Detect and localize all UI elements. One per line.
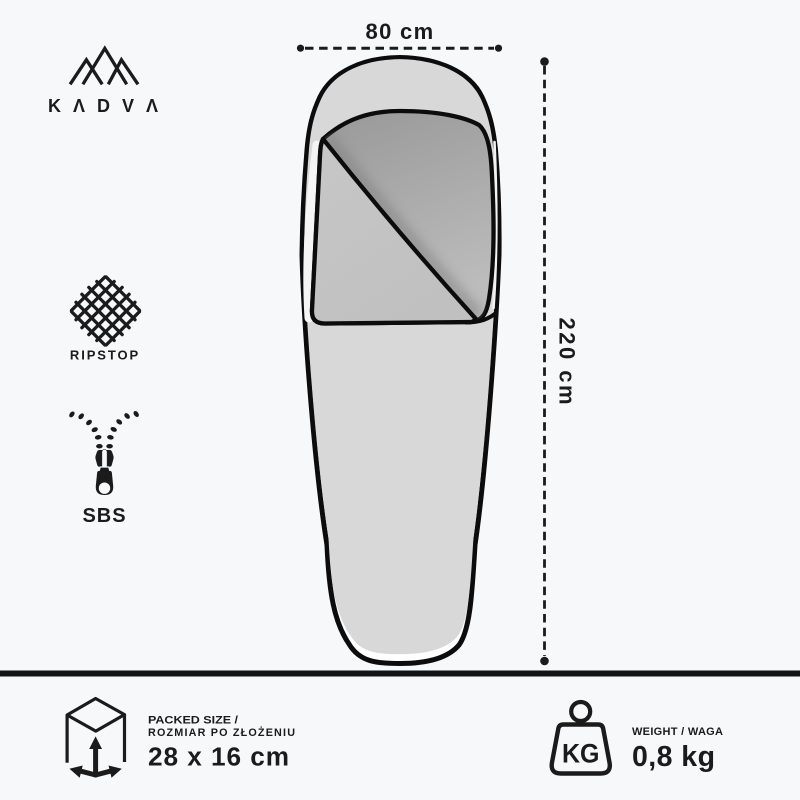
svg-text:KG: KG bbox=[562, 739, 600, 769]
svg-text:28 x 16 cm: 28 x 16 cm bbox=[148, 741, 289, 771]
svg-text:80 cm: 80 cm bbox=[366, 19, 435, 44]
svg-text:0,8 kg: 0,8 kg bbox=[632, 741, 715, 773]
svg-text:RIPSTOP: RIPSTOP bbox=[70, 348, 140, 363]
svg-text:SBS: SBS bbox=[82, 505, 126, 527]
svg-text:WEIGHT / WAGA: WEIGHT / WAGA bbox=[632, 726, 723, 738]
svg-text:ROZMIAR PO ZŁOŻENIU: ROZMIAR PO ZŁOŻENIU bbox=[148, 726, 295, 739]
svg-text:PACKED SIZE /: PACKED SIZE / bbox=[148, 715, 238, 727]
